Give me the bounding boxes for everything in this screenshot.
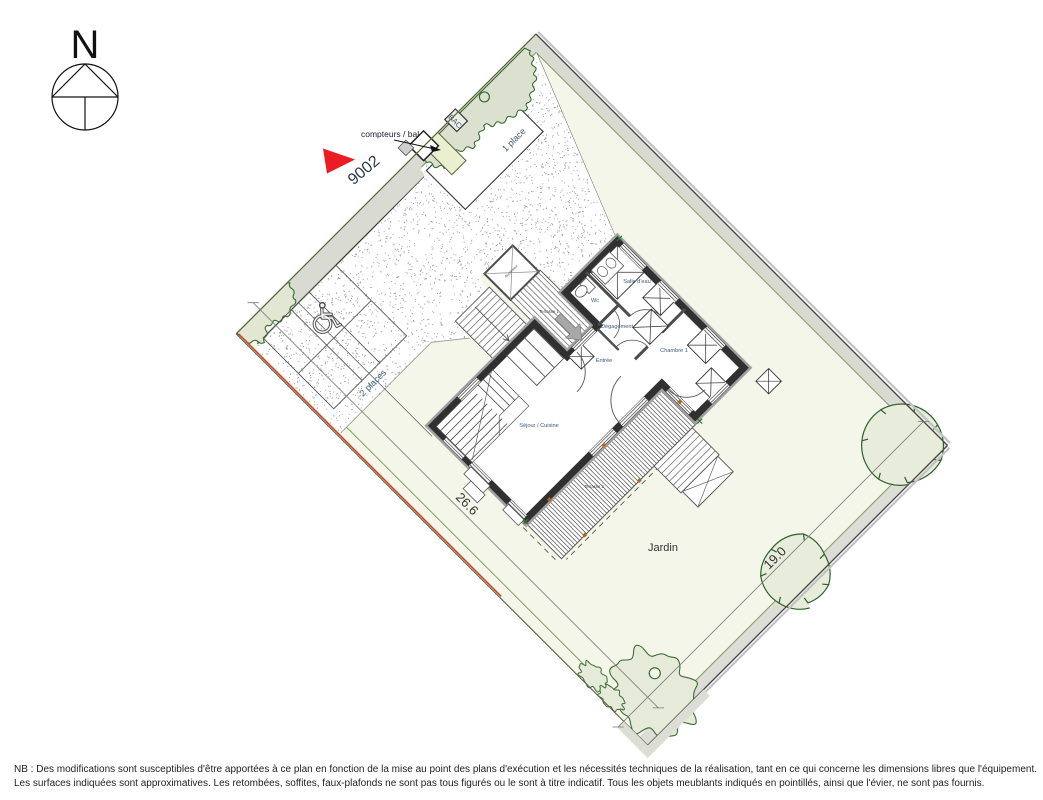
svg-text:NB : Des modifications sont su: NB : Des modifications sont susceptibles…	[14, 764, 1037, 775]
svg-text:Terrasse 2: Terrasse 2	[584, 484, 604, 489]
svg-text:9002: 9002	[345, 153, 383, 189]
svg-text:Salle d'eau: Salle d'eau	[623, 279, 651, 285]
svg-text:N: N	[71, 23, 100, 67]
svg-text:Wc: Wc	[591, 298, 599, 304]
svg-text:Les surfaces indiquées sont ap: Les surfaces indiquées sont approximativ…	[14, 778, 984, 789]
svg-text:Dégagement: Dégagement	[601, 324, 633, 330]
svg-text:Séjour / Cuisine: Séjour / Cuisine	[519, 423, 559, 429]
svg-text:Jardin: Jardin	[648, 542, 678, 554]
svg-text:Terrasse 1: Terrasse 1	[539, 309, 559, 314]
svg-text:compteurs / bal: compteurs / bal	[361, 129, 419, 139]
svg-text:Entrée: Entrée	[596, 358, 612, 364]
svg-text:Chambre 1: Chambre 1	[660, 348, 688, 354]
